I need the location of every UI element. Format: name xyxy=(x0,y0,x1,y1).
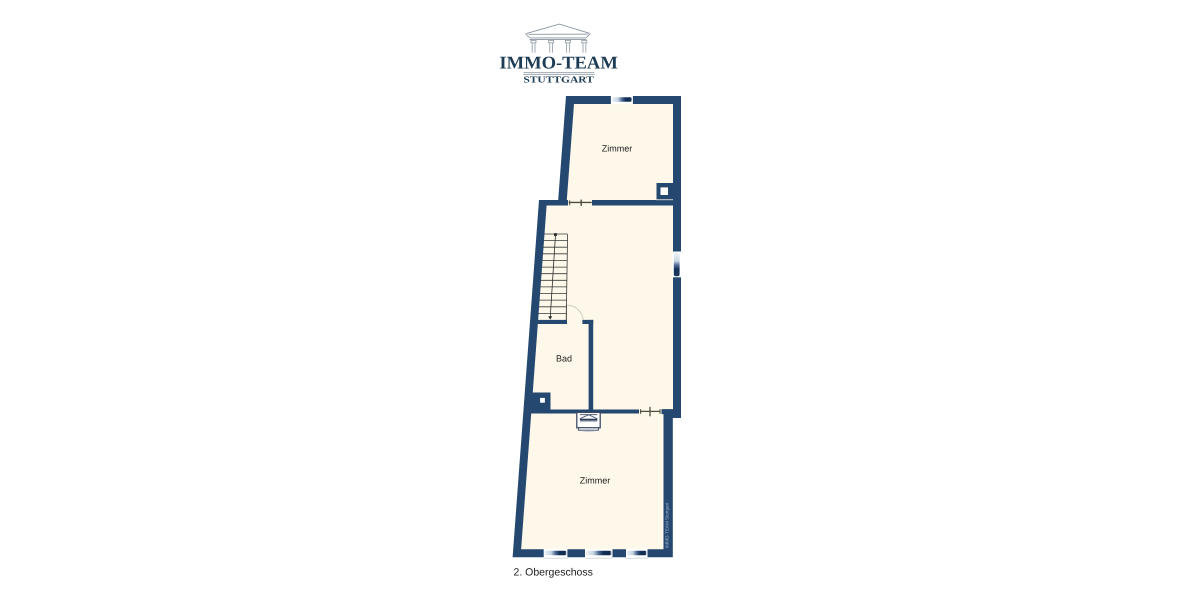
svg-text:IMMO-TEAM: IMMO-TEAM xyxy=(499,52,618,72)
svg-text:Bad: Bad xyxy=(556,353,572,363)
svg-text:2. Obergeschoss: 2. Obergeschoss xyxy=(514,567,593,579)
svg-text:STUTTGART: STUTTGART xyxy=(523,75,594,85)
svg-text:Zimmer: Zimmer xyxy=(580,476,611,486)
svg-text:Zimmer: Zimmer xyxy=(602,143,633,153)
svg-text:IMMO-TEAM Stuttgart: IMMO-TEAM Stuttgart xyxy=(664,502,669,548)
